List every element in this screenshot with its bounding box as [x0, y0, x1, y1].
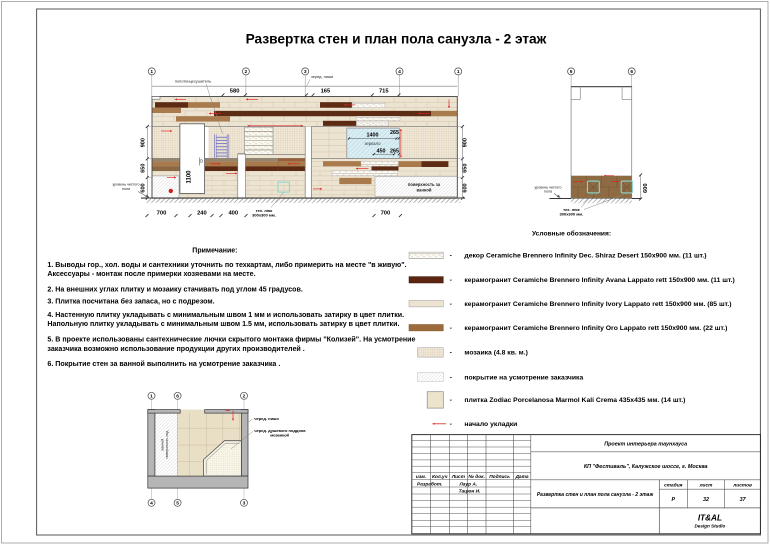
- svg-text:900: 900: [462, 138, 468, 147]
- svg-text:Р: Р: [671, 497, 675, 503]
- svg-text:650: 650: [141, 164, 147, 173]
- svg-text:650: 650: [462, 164, 468, 173]
- svg-text:6: 6: [176, 394, 179, 400]
- svg-text:Разработ.: Разработ.: [417, 480, 442, 487]
- svg-text:Напольную плитку укладывать с: Напольную плитку укладывать с минимальны…: [47, 320, 399, 328]
- svg-text:1: 1: [150, 394, 153, 400]
- svg-text:600: 600: [643, 183, 649, 193]
- svg-text:600: 600: [462, 183, 468, 192]
- svg-text:керамогранит Ceramiche Brenner: керамогранит Ceramiche Brennero Infinity…: [464, 277, 734, 284]
- svg-text:700: 700: [381, 210, 391, 216]
- svg-text:-: -: [450, 350, 452, 357]
- svg-text:3. Плитка посчитана без запаса: 3. Плитка посчитана без запаса, но с под…: [47, 298, 214, 306]
- svg-text:мозаикой: мозаикой: [270, 432, 289, 437]
- svg-text:265: 265: [390, 130, 399, 136]
- svg-text:-: -: [450, 374, 452, 381]
- svg-text:6. Покрытие стен за ванной вып: 6. Покрытие стен за ванной выполнить на …: [47, 360, 280, 368]
- svg-text:2: 2: [243, 394, 246, 400]
- svg-text:1400: 1400: [367, 133, 379, 139]
- svg-text:изм.: изм.: [416, 475, 426, 480]
- svg-text:керамогранит Ceramiche Brenner: керамогранит Ceramiche Brennero Infinity…: [464, 301, 731, 308]
- svg-text:4: 4: [150, 501, 153, 507]
- svg-text:керамогранит Ceramiche Brenner: керамогранит Ceramiche Brennero Infinity…: [464, 325, 727, 332]
- svg-text:заказчика возможно использован: заказчика возможно использование продукц…: [47, 345, 304, 353]
- svg-text:Тацюн И.: Тацюн И.: [459, 489, 481, 495]
- svg-text:покрытие на усмотрение заказчи: покрытие на усмотрение заказчика: [464, 374, 583, 381]
- svg-text:700: 700: [157, 210, 167, 216]
- svg-text:1: 1: [457, 69, 460, 75]
- svg-text:-: -: [450, 397, 452, 404]
- svg-text:-: -: [450, 421, 452, 428]
- svg-text:плитка Zodiac Porcelanosa Marm: плитка Zodiac Porcelanosa Marmol Kali Cr…: [464, 397, 685, 404]
- svg-text:поверхность под: поверхность под: [165, 430, 169, 459]
- svg-text:ванной: ванной: [160, 439, 164, 451]
- svg-text:-: -: [450, 277, 452, 284]
- svg-text:715: 715: [379, 89, 389, 95]
- svg-text:лист: лист: [699, 483, 714, 488]
- svg-text:5. В проекте использованы сант: 5. В проекте использованы сантехнические…: [47, 336, 415, 344]
- svg-text:Развертка стен и план пола сан: Развертка стен и план пола санузла - 2 э…: [246, 32, 547, 47]
- svg-text:пола: пола: [122, 187, 130, 191]
- svg-text:2: 2: [245, 69, 248, 75]
- svg-text:580: 580: [230, 89, 240, 95]
- svg-text:-: -: [450, 325, 452, 332]
- svg-text:IT&AL: IT&AL: [698, 513, 722, 522]
- svg-text:2. На внешних углах плитку и м: 2. На внешних углах плитку и мозаику ста…: [47, 285, 302, 293]
- svg-text:600: 600: [141, 183, 147, 192]
- svg-text:черед. ниши: черед. ниши: [254, 416, 279, 421]
- svg-text:6: 6: [630, 69, 633, 75]
- svg-text:зеркало: зеркало: [364, 141, 381, 146]
- svg-text:5: 5: [176, 501, 179, 507]
- svg-text:1. Выводы гор., хол. воды и са: 1. Выводы гор., хол. воды и сантехники у…: [47, 261, 406, 269]
- svg-text:№ док.: № док.: [467, 474, 485, 480]
- svg-text:Подпись: Подпись: [489, 474, 510, 480]
- svg-text:-: -: [450, 253, 452, 260]
- svg-text:Лист: Лист: [451, 474, 466, 480]
- svg-text:черед. ниши: черед. ниши: [311, 74, 333, 79]
- svg-text:37: 37: [740, 497, 747, 503]
- svg-text:Аксессуары - монтаж после прим: Аксессуары - монтаж после примерки хозяе…: [47, 270, 255, 278]
- svg-text:пола: пола: [544, 190, 552, 194]
- svg-text:ванной: ванной: [416, 187, 431, 192]
- svg-text:КП "Фестиваль", Калужское шосс: КП "Фестиваль", Калужское шоссе, г. Моск…: [584, 464, 708, 470]
- svg-text:265: 265: [390, 149, 399, 155]
- svg-text:декор Ceramiche Brennero Infin: декор Ceramiche Brennero Infinity Dec. S…: [464, 253, 706, 260]
- svg-text:165: 165: [321, 89, 331, 95]
- svg-text:Проект интерьера таунхауса: Проект интерьера таунхауса: [604, 442, 687, 448]
- svg-text:5: 5: [570, 69, 573, 75]
- svg-text:Условные обозначения:: Условные обозначения:: [532, 229, 611, 237]
- svg-text:450: 450: [377, 149, 386, 155]
- svg-text:300х300 мм.: 300х300 мм.: [252, 213, 276, 218]
- svg-text:листов: листов: [732, 483, 752, 488]
- svg-text:4. Настенную плитку укладывать: 4. Настенную плитку укладывать с минимал…: [47, 311, 404, 319]
- svg-text:900: 900: [141, 138, 147, 147]
- svg-text:мозаика (4.8 кв. м.): мозаика (4.8 кв. м.): [464, 350, 527, 357]
- svg-text:1100: 1100: [187, 170, 193, 184]
- svg-text:полотенцесушитель: полотенцесушитель: [175, 78, 211, 83]
- svg-text:Дата: Дата: [514, 474, 528, 480]
- svg-text:1: 1: [150, 69, 153, 75]
- svg-text:Лаур А.: Лаур А.: [458, 481, 477, 487]
- svg-text:3: 3: [243, 501, 246, 507]
- svg-text:Развертка стен и план пола сан: Развертка стен и план пола санузла - 2 э…: [537, 492, 654, 498]
- svg-text:240: 240: [197, 210, 207, 216]
- svg-text:4: 4: [398, 69, 401, 75]
- svg-text:Примечание:: Примечание:: [192, 247, 237, 254]
- svg-text:Design Studio: Design Studio: [694, 524, 725, 529]
- svg-text:стадия: стадия: [664, 482, 682, 488]
- svg-text:3: 3: [304, 69, 307, 75]
- svg-text:Кол.уч: Кол.уч: [432, 474, 448, 480]
- svg-text:начало укладки: начало укладки: [464, 421, 517, 428]
- svg-text:-: -: [450, 301, 452, 308]
- svg-text:32: 32: [703, 497, 709, 503]
- svg-text:300х300 мм.: 300х300 мм.: [560, 212, 584, 217]
- svg-text:400: 400: [228, 210, 238, 216]
